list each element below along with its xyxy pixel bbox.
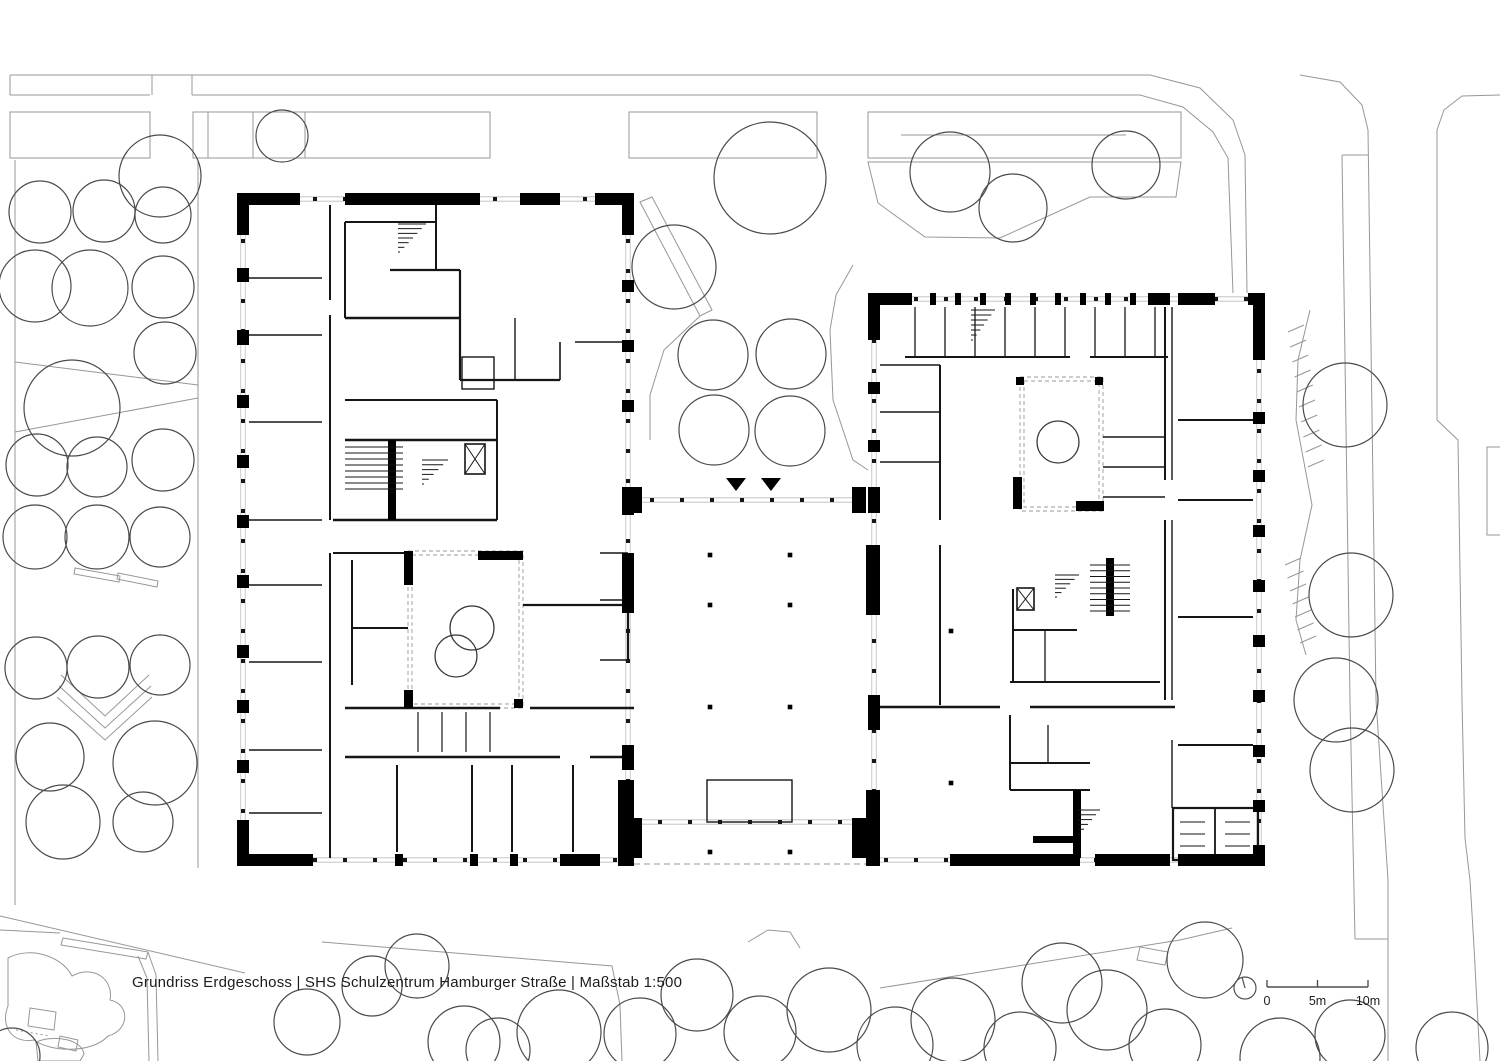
path-line — [1437, 95, 1500, 838]
north-symbol — [1234, 977, 1256, 999]
window-mullion — [626, 239, 630, 243]
wall-heavy — [404, 551, 413, 585]
tree-icon — [0, 1028, 40, 1061]
entrance-arrow-icon — [761, 478, 781, 491]
path-outline — [640, 197, 712, 316]
window-mullion — [613, 858, 617, 862]
scalebar-label: 0 — [1264, 994, 1271, 1008]
tree-icon — [1309, 553, 1393, 637]
tree-icon — [1315, 1000, 1385, 1061]
window-mullion — [1257, 489, 1261, 493]
tree-icon — [24, 360, 120, 456]
wall-heavy — [510, 854, 518, 866]
tree-icon — [67, 636, 129, 698]
wall-heavy — [1016, 377, 1024, 385]
window-mullion — [373, 858, 377, 862]
wall-heavy — [1076, 501, 1104, 511]
dotted-path — [16, 1030, 50, 1036]
tree-icon — [9, 181, 71, 243]
window-mullion — [1257, 759, 1261, 763]
window-mullion — [872, 459, 876, 463]
window-mullion — [626, 539, 630, 543]
window-mullion — [241, 509, 245, 513]
path-line — [0, 916, 245, 973]
wall-heavy — [237, 395, 249, 408]
window-mullion — [241, 779, 245, 783]
window-mullion — [313, 197, 317, 201]
window-mullion — [241, 689, 245, 693]
path-line — [1342, 155, 1355, 939]
window-mullion — [1257, 369, 1261, 373]
slope-hatch — [1301, 415, 1317, 422]
window-mullion — [974, 297, 978, 301]
window-mullion — [583, 197, 587, 201]
column-dot — [949, 629, 954, 634]
window-mullion — [1257, 399, 1261, 403]
window-mullion — [626, 449, 630, 453]
tree-icon — [119, 135, 201, 217]
tree-icon — [1294, 658, 1378, 742]
slope-hatch — [1290, 340, 1306, 347]
tree-icon — [724, 996, 796, 1061]
tree-icon — [134, 322, 196, 384]
window-mullion — [313, 858, 317, 862]
wall-heavy — [237, 575, 249, 588]
wall-heavy — [868, 382, 880, 394]
slope-hatch — [1298, 623, 1314, 630]
wall-heavy — [1178, 293, 1215, 305]
wall-heavy — [1148, 293, 1170, 305]
wall-heavy — [1253, 800, 1265, 812]
window-mullion — [838, 820, 842, 824]
wall-heavy — [237, 455, 249, 468]
wall-heavy — [1013, 477, 1022, 509]
wall-heavy — [930, 293, 936, 305]
elevators — [465, 444, 1034, 610]
tree-icon — [1240, 1018, 1320, 1061]
courtyard-trees — [435, 421, 1079, 677]
site-paths — [0, 75, 1500, 1061]
wall-heavy — [1253, 525, 1265, 537]
path-line — [1368, 130, 1388, 880]
window-mullion — [626, 719, 630, 723]
path-line — [61, 675, 149, 716]
wall-heavy — [1130, 293, 1136, 305]
column-dot — [949, 781, 954, 786]
window-mullion — [884, 858, 888, 862]
window-mullion — [872, 369, 876, 373]
wall-heavy — [1005, 293, 1011, 305]
tree-icon — [756, 319, 826, 389]
wall-heavy — [478, 551, 523, 560]
wall-heavy — [622, 400, 634, 412]
window-mullion — [872, 759, 876, 763]
path-line — [15, 398, 198, 432]
window-mullion — [343, 858, 347, 862]
wall-heavy — [622, 340, 634, 352]
tree-icon — [857, 1007, 933, 1061]
courtyard-glazing — [412, 555, 519, 704]
tree-icon — [1129, 1009, 1201, 1061]
path-outline — [61, 938, 148, 959]
wall-heavy — [345, 193, 480, 205]
wall-heavy — [1253, 470, 1265, 482]
wall-heavy — [514, 699, 523, 708]
window-mullion — [403, 858, 407, 862]
structural-walls — [237, 193, 1265, 866]
wall-heavy — [1253, 293, 1265, 360]
column-dot — [788, 850, 793, 855]
window-mullion — [241, 569, 245, 573]
path-line — [0, 930, 60, 933]
wall-heavy — [470, 854, 478, 866]
columns — [708, 553, 954, 855]
entrance-arrow-icon — [726, 478, 746, 491]
window-mullion — [241, 299, 245, 303]
tree-icon — [274, 989, 340, 1055]
window-mullion — [241, 449, 245, 453]
path-line — [322, 942, 622, 1061]
window-mullion — [626, 419, 630, 423]
window-mullion — [944, 297, 948, 301]
wall-heavy — [1080, 293, 1086, 305]
tree-icon — [16, 723, 84, 791]
window-mullion — [740, 498, 744, 502]
window-mullion — [241, 659, 245, 663]
tree-icon — [130, 635, 190, 695]
slope-hatch — [1306, 445, 1322, 452]
window-mullion — [241, 389, 245, 393]
window-mullion — [493, 858, 497, 862]
courtyard-glazing — [408, 551, 523, 708]
window-mullion — [1124, 297, 1128, 301]
wall-heavy — [404, 690, 413, 708]
wall-heavy — [237, 193, 249, 235]
slope-hatch — [1292, 355, 1308, 362]
path-outline — [1137, 947, 1168, 965]
wall-heavy — [868, 854, 880, 866]
wall-heavy — [1253, 690, 1265, 702]
wall-heavy — [1033, 836, 1077, 843]
window-mullion — [241, 239, 245, 243]
wall-heavy — [628, 487, 642, 513]
path-outline — [28, 1008, 56, 1030]
tree-icon — [661, 959, 733, 1031]
drawing-caption: Grundriss Erdgeschoss | SHS Schulzentrum… — [132, 974, 682, 991]
wall-heavy — [1178, 854, 1265, 866]
tree-icon — [130, 507, 190, 567]
window-mullion — [433, 858, 437, 862]
window-mullion — [1257, 789, 1261, 793]
tree-icon — [113, 792, 173, 852]
window-mullion — [800, 498, 804, 502]
wall-heavy — [560, 854, 600, 866]
tree-icon — [435, 635, 477, 677]
window-mullion — [463, 858, 467, 862]
window-mullion — [241, 629, 245, 633]
slope-hatch — [1295, 610, 1311, 617]
tree-icon — [26, 785, 100, 859]
slope-hatch — [1285, 558, 1301, 565]
path-line — [138, 956, 149, 1061]
window-mullion — [872, 669, 876, 673]
path-line — [15, 362, 198, 385]
tree-icon — [52, 250, 128, 326]
window-mullion — [523, 858, 527, 862]
window-mullion — [1257, 729, 1261, 733]
wall-heavy — [1253, 745, 1265, 757]
tree-icon — [787, 968, 871, 1052]
room-outline — [707, 780, 792, 822]
slope-hatch — [1288, 325, 1304, 332]
slope-hatch — [1288, 571, 1304, 578]
slope-hatch — [1293, 597, 1309, 604]
window-mullion — [914, 858, 918, 862]
tree-icon — [1067, 970, 1147, 1050]
window-mullion — [241, 419, 245, 423]
window-mullion — [1244, 297, 1248, 301]
column-dot — [708, 705, 713, 710]
wall-heavy — [622, 745, 634, 770]
tree-icon — [65, 505, 129, 569]
window-mullion — [1257, 429, 1261, 433]
path-outline — [868, 162, 1181, 238]
room-outline — [462, 357, 494, 389]
path-line — [880, 928, 1232, 988]
courtyard-glazing — [1020, 377, 1103, 511]
window-mullion — [626, 269, 630, 273]
tree-icon — [679, 395, 749, 465]
wall-heavy — [622, 280, 634, 292]
tree-icon — [428, 1006, 500, 1061]
wall-heavy — [868, 440, 880, 452]
tree-icon — [67, 437, 127, 497]
courtyard-glazing — [1024, 381, 1099, 507]
wall-heavy — [1055, 293, 1061, 305]
wall-heavy — [1095, 377, 1103, 385]
wall-heavy — [237, 854, 313, 866]
wall-heavy — [237, 645, 249, 658]
window-mullion — [944, 858, 948, 862]
window-mullion — [626, 329, 630, 333]
window-mullion — [658, 820, 662, 824]
tree-icon — [132, 256, 194, 318]
wall-heavy — [1253, 412, 1265, 424]
window-mullion — [626, 299, 630, 303]
path-line — [1300, 75, 1368, 130]
wall-heavy — [237, 700, 249, 713]
sidewalk-band — [629, 112, 817, 158]
tree-icon — [678, 320, 748, 390]
tree-icon — [5, 637, 67, 699]
wall-heavy — [1030, 293, 1036, 305]
window-mullion — [830, 498, 834, 502]
entrance-arrows — [726, 478, 781, 491]
site-plan-svg: 05m10m — [0, 0, 1500, 1061]
scalebar-label: 10m — [1356, 994, 1380, 1008]
path-line — [57, 697, 152, 740]
floor-plan-page: 05m10m Grundriss Erdgeschoss | SHS Schul… — [0, 0, 1500, 1061]
tree-icon — [1037, 421, 1079, 463]
window-mullion — [872, 519, 876, 523]
window-mullion — [241, 359, 245, 363]
slope-hatch — [1295, 370, 1311, 377]
window-mullion — [872, 639, 876, 643]
window-mullion — [241, 749, 245, 753]
wall-heavy — [237, 268, 249, 282]
column-dot — [788, 553, 793, 558]
tree-icon — [135, 187, 191, 243]
window-mullion — [770, 498, 774, 502]
wall-heavy — [1095, 854, 1170, 866]
path-line — [748, 930, 800, 948]
wall-heavy — [955, 293, 961, 305]
path-outline — [117, 573, 158, 587]
tree-icon — [1092, 131, 1160, 199]
wall-heavy — [852, 487, 866, 513]
window-mullion — [241, 599, 245, 603]
sidewalk-band — [1487, 447, 1500, 535]
window-mullion — [1257, 459, 1261, 463]
wall-heavy — [1253, 580, 1265, 592]
wall-heavy — [868, 695, 880, 730]
window-mullion — [626, 479, 630, 483]
playground-shape — [36, 1038, 84, 1061]
window-mullion — [808, 820, 812, 824]
window-mullion — [872, 429, 876, 433]
wall-heavy — [237, 760, 249, 773]
tree-icon — [604, 998, 676, 1061]
window-mullion — [241, 539, 245, 543]
wall-heavy — [868, 487, 880, 513]
tree-icon — [1167, 922, 1243, 998]
slope-hatch — [1308, 460, 1324, 467]
sidewalk-band — [193, 112, 490, 158]
wall-heavy — [868, 293, 880, 340]
tree-icon — [73, 180, 135, 242]
window-mullion — [1257, 549, 1261, 553]
wall-heavy — [622, 553, 634, 613]
scalebar-label: 5m — [1309, 994, 1326, 1008]
wall-heavy — [950, 854, 1080, 866]
tree-icon — [132, 429, 194, 491]
column-dot — [788, 705, 793, 710]
wall-heavy — [520, 193, 560, 205]
path-line — [10, 75, 1247, 293]
window-mullion — [553, 858, 557, 862]
column-dot — [788, 603, 793, 608]
wall-heavy — [628, 818, 642, 858]
path-line — [59, 686, 151, 728]
tree-icon — [1416, 1012, 1488, 1061]
wall-heavy — [1253, 635, 1265, 647]
stairs — [345, 224, 1130, 834]
window-mullion — [626, 689, 630, 693]
column-dot — [708, 603, 713, 608]
window-mullion — [1257, 609, 1261, 613]
wall-heavy — [866, 545, 880, 615]
tree-icon — [256, 110, 308, 162]
wall-heavy — [852, 818, 866, 858]
window-mullion — [241, 719, 245, 723]
column-dot — [708, 850, 713, 855]
path-line — [1465, 838, 1480, 1061]
path-line — [650, 316, 700, 440]
tree-icon — [3, 505, 67, 569]
window-mullion — [493, 197, 497, 201]
path-line — [830, 265, 868, 470]
wall-heavy — [237, 330, 249, 345]
path-line — [148, 952, 158, 1061]
playground-shape — [6, 953, 125, 1049]
window-mullion — [872, 399, 876, 403]
column-dot — [708, 553, 713, 558]
wall-heavy — [622, 193, 634, 235]
window-mullion — [688, 820, 692, 824]
window-mullion — [626, 359, 630, 363]
window-mullion — [1257, 519, 1261, 523]
window-mullion — [680, 498, 684, 502]
scale-bar: 05m10m — [1264, 980, 1381, 1008]
window-mullion — [1257, 669, 1261, 673]
window-mullion — [710, 498, 714, 502]
wall-heavy — [980, 293, 986, 305]
window-mullion — [1064, 297, 1068, 301]
wall-heavy — [395, 854, 403, 866]
slope-hatch — [1300, 636, 1316, 643]
window-mullion — [1094, 297, 1098, 301]
tree-icon — [1022, 943, 1102, 1023]
wall-heavy — [237, 515, 249, 528]
wall-heavy — [1105, 293, 1111, 305]
tree-icon — [755, 396, 825, 466]
window-mullion — [914, 297, 918, 301]
wall-heavy — [1106, 558, 1114, 616]
window-mullion — [650, 498, 654, 502]
tree-icon — [113, 721, 197, 805]
window-mullion — [241, 809, 245, 813]
north-icon — [1242, 977, 1245, 988]
tree-icon — [714, 122, 826, 234]
wall-heavy — [388, 440, 396, 520]
slope-hatch — [1299, 400, 1315, 407]
sidewalk-band — [10, 112, 150, 158]
tree-icon — [910, 132, 990, 212]
path-outline — [74, 568, 120, 582]
window-mullion — [241, 479, 245, 483]
window-mullion — [626, 389, 630, 393]
